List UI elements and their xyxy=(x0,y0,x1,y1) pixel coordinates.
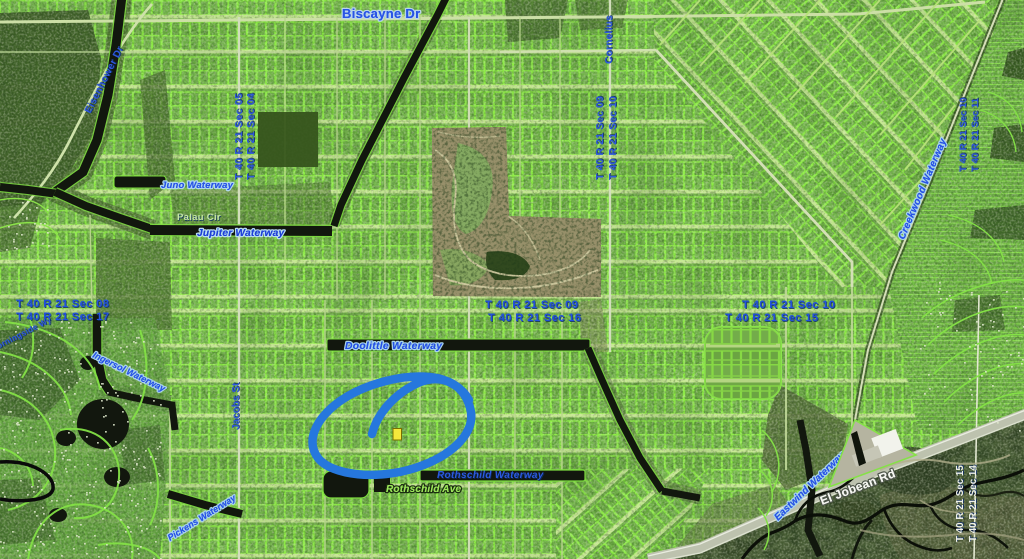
svg-text:Jacobs St: Jacobs St xyxy=(231,382,242,430)
svg-text:Cornelius: Cornelius xyxy=(604,15,615,64)
svg-text:Juno Waterway: Juno Waterway xyxy=(161,180,234,191)
svg-text:T 40 R 21 Sec 16: T 40 R 21 Sec 16 xyxy=(488,312,581,324)
svg-text:Palau Cir: Palau Cir xyxy=(177,212,221,223)
svg-text:T 40 R 21 Sec 14: T 40 R 21 Sec 14 xyxy=(968,465,979,542)
svg-text:T 40 R 21 Sec 10: T 40 R 21 Sec 10 xyxy=(742,299,835,311)
svg-text:T 40 R 21 Sec 09: T 40 R 21 Sec 09 xyxy=(594,96,606,180)
svg-text:T 40 R 21 Sec 11: T 40 R 21 Sec 11 xyxy=(970,97,981,172)
svg-text:T 40 R 21 Sec 17: T 40 R 21 Sec 17 xyxy=(16,311,109,323)
svg-text:T 40 R 21 Sec 04: T 40 R 21 Sec 04 xyxy=(245,93,257,180)
svg-text:Rothschild Ave: Rothschild Ave xyxy=(386,484,461,495)
svg-text:Doolittle Waterway: Doolittle Waterway xyxy=(345,341,443,352)
svg-text:T 40 R 21 Sec 10: T 40 R 21 Sec 10 xyxy=(958,98,969,172)
svg-text:Biscayne Dr: Biscayne Dr xyxy=(342,6,420,21)
svg-text:T 40 R 21 Sec 08: T 40 R 21 Sec 08 xyxy=(16,298,109,310)
svg-text:Jupiter Waterway: Jupiter Waterway xyxy=(197,228,286,239)
svg-text:T 40 R 21 Sec 05: T 40 R 21 Sec 05 xyxy=(233,93,245,180)
svg-text:T 40 R 21 Sec 10: T 40 R 21 Sec 10 xyxy=(607,96,619,180)
svg-text:T 40 R 21 Sec 15: T 40 R 21 Sec 15 xyxy=(955,465,966,542)
svg-text:T 40 R 21 Sec 15: T 40 R 21 Sec 15 xyxy=(725,312,818,324)
svg-text:T 40 R 21 Sec 09: T 40 R 21 Sec 09 xyxy=(485,299,578,311)
svg-text:Rothschild Waterway: Rothschild Waterway xyxy=(437,470,544,481)
